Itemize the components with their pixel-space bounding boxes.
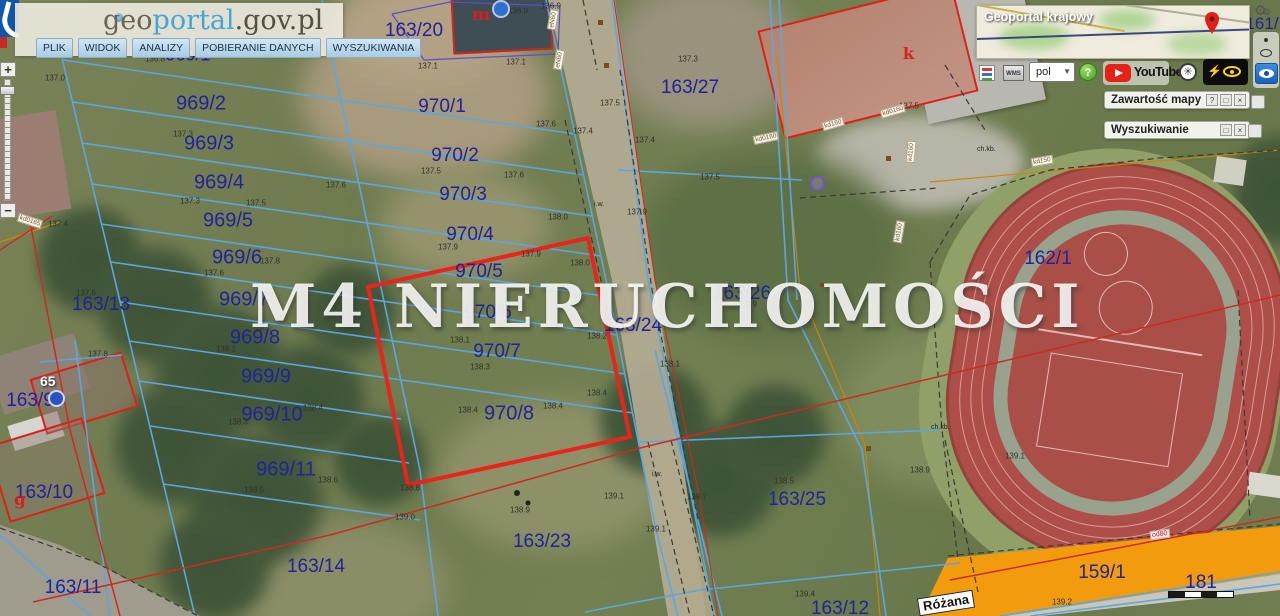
watermark: M4 NIERUCHOMOŚCI [250, 272, 1050, 342]
menu-item-widok[interactable]: WIDOK [78, 38, 128, 58]
map-viewport[interactable]: 969/1969/2969/3969/4969/5969/6969/7969/8… [0, 0, 1280, 616]
menu-item-wyszukiwania[interactable]: WYSZUKIWANIA [326, 38, 422, 58]
elevation-label: 137.3 [180, 197, 200, 206]
collapsed-panel-handle[interactable] [1248, 124, 1262, 138]
panel-buttons: □× [1220, 124, 1246, 136]
overview-minimap[interactable]: Geoportal krajowy [976, 5, 1250, 59]
address-number: 65 [40, 373, 56, 389]
legend-swatch [982, 68, 992, 71]
globe-icon[interactable]: ✳ [1179, 63, 1197, 81]
scale-segment [1201, 592, 1217, 597]
logo-portal: portal [153, 5, 235, 36]
minimize-icon[interactable]: □ [1220, 124, 1232, 136]
manhole-symbol [810, 176, 825, 191]
utility-line-label: kd0180 [753, 131, 780, 145]
zoom-slider-handle[interactable] [0, 86, 15, 95]
scale-segment [1185, 592, 1201, 597]
court-circle [1095, 276, 1157, 338]
elevation-label: 137.0 [45, 74, 65, 83]
parcel-label: 969/2 [176, 93, 226, 116]
elevation-label: 139.0 [395, 513, 415, 522]
panel-map-contents[interactable]: Zawartość mapy ?□× [1104, 91, 1250, 109]
minimize-icon[interactable]: □ [1220, 94, 1232, 106]
parcel-label: 969/4 [194, 172, 244, 195]
parcel-label: 969/6 [212, 247, 262, 270]
settings-gears-icon[interactable]: ⚙⚙ [1254, 2, 1271, 19]
panel-buttons: ?□× [1206, 94, 1246, 106]
elevation-label: 139.2 [1052, 598, 1072, 607]
logo-domain: .gov.pl [235, 5, 324, 36]
youtube-play-icon [1105, 64, 1131, 82]
court-rect [1036, 353, 1182, 467]
elevation-label: 137.5 [600, 99, 620, 108]
zoom-in-button[interactable]: + [0, 62, 16, 77]
location-pin-icon [1205, 12, 1219, 39]
accessibility-contrast-button[interactable]: ⚡ [1203, 59, 1248, 85]
utility-line-label: eN60 [553, 50, 565, 71]
language-value: pol [1036, 66, 1051, 78]
parcel-label: 163/12 [811, 598, 869, 616]
menu-item-pobieranie-danych[interactable]: POBIERANIE DANYCH [195, 38, 320, 58]
well-symbol [492, 0, 510, 18]
elevation-label: 138.0 [570, 259, 590, 268]
chevron-down-icon: ▼ [1063, 63, 1071, 81]
eye-pupil [1264, 71, 1269, 76]
zoom-slider-track[interactable] [4, 79, 11, 201]
menu-item-plik[interactable]: PLIK [36, 38, 73, 58]
help-button[interactable]: ? [1079, 63, 1097, 81]
elevation-label: 137.4 [635, 136, 655, 145]
light-pad [1247, 472, 1280, 499]
scale-segment [1169, 592, 1185, 597]
eye-icon [1223, 66, 1241, 77]
legend-swatch [982, 73, 992, 76]
wms-icon[interactable]: WMS [1003, 65, 1024, 81]
close-icon[interactable]: × [1234, 94, 1246, 106]
elevation-label: 137.8 [260, 257, 280, 266]
court-arc [1081, 229, 1131, 279]
elevation-label: 138.3 [470, 363, 490, 372]
logo-geo: geo [103, 5, 153, 36]
eye-outline-icon[interactable] [1260, 49, 1272, 57]
panel-title: Zawartość mapy [1111, 94, 1201, 106]
youtube-label: YouTube [1134, 65, 1182, 79]
collapsed-panel-handle[interactable] [1251, 95, 1265, 109]
elevation-label: 139.4 [795, 590, 815, 599]
elevation-label: 137.5 [246, 199, 266, 208]
parcel-label: 163/11 [45, 577, 102, 599]
dot-icon[interactable] [1264, 38, 1268, 42]
legend-icon[interactable] [979, 65, 995, 81]
panel-search[interactable]: Wyszukiwanie □× [1104, 121, 1250, 139]
menu-bar: PLIKWIDOKANALIZYPOBIERANIE DANYCHWYSZUKI… [36, 38, 421, 58]
visibility-button[interactable] [1255, 63, 1278, 84]
minimap-title: Geoportal krajowy [984, 10, 1093, 24]
tree [150, 510, 280, 616]
elevation-label: 137.9 [627, 208, 647, 217]
street-name-label: Różana [917, 590, 975, 616]
help-icon[interactable]: ? [1206, 94, 1218, 106]
parcel-label: 970/7 [473, 341, 521, 363]
elevation-label: 138.0 [548, 213, 568, 222]
menu-item-analizy[interactable]: ANALIZY [132, 38, 190, 58]
elevation-label: 137.3 [173, 130, 193, 139]
scale-segment [1217, 592, 1233, 597]
logo-red-fragment [0, 37, 7, 48]
language-select[interactable]: pol▼ [1029, 62, 1075, 82]
tree [330, 410, 430, 510]
geoportal-wordmark[interactable]: geoportal.gov.pl [103, 5, 323, 36]
elevation-label: 137.6 [326, 181, 346, 190]
elevation-label: 137.4 [573, 127, 593, 136]
address-point-symbol [48, 390, 65, 407]
tree [720, 380, 830, 490]
scale-bar [1168, 591, 1234, 598]
zoom-out-button[interactable]: − [0, 203, 16, 218]
terrain-grass-light [380, 170, 550, 280]
parcel-label: 969/5 [203, 210, 253, 233]
header-panel: geoportal.gov.pl PLIKWIDOKANALIZYPOBIERA… [15, 3, 343, 56]
map-annotation: i.w. [594, 201, 604, 208]
bolt-icon: ⚡ [1207, 64, 1222, 78]
youtube-button[interactable]: YouTube [1103, 61, 1169, 85]
parcel-label: 969/3 [184, 133, 234, 156]
elevation-label: 139.1 [646, 525, 666, 534]
legend-swatch [982, 78, 992, 81]
panel-title: Wyszukiwanie [1111, 124, 1189, 136]
close-icon[interactable]: × [1234, 124, 1246, 136]
elevation-label: 138.4 [458, 406, 478, 415]
light-pad [1213, 156, 1246, 186]
